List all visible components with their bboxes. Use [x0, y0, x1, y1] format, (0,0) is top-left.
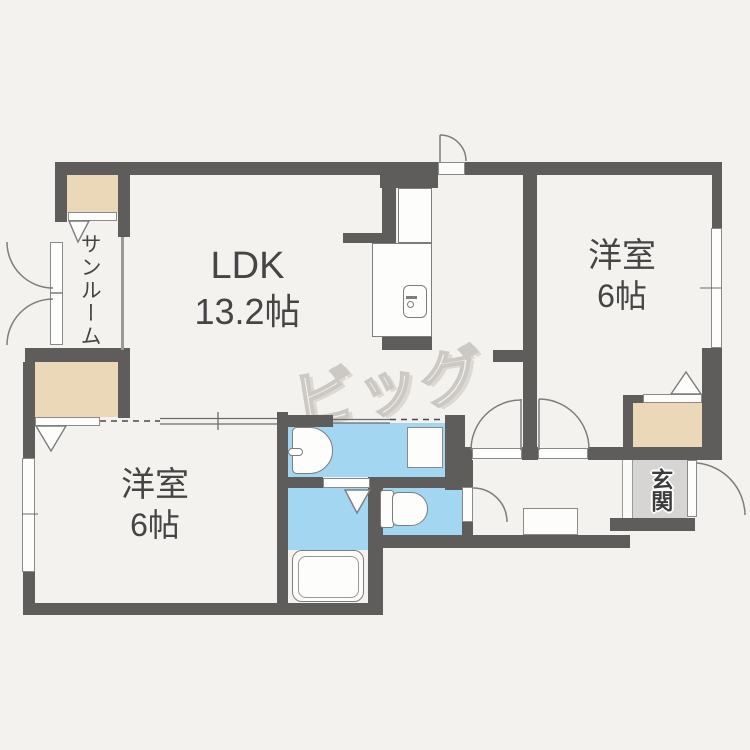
ldk-label: LDK 13.2帖 — [140, 246, 355, 331]
ldk-size: 13.2帖 — [140, 292, 355, 332]
folding-door-icon — [671, 372, 701, 394]
sunroom-label: サンルーム — [78, 224, 101, 356]
door-arc — [471, 400, 521, 450]
bedroom-right-size: 6帖 — [537, 279, 707, 314]
door-arc — [7, 242, 53, 288]
door-swing-overlay — [0, 0, 750, 750]
bedroom-right-name: 洋室 — [537, 238, 707, 275]
folding-door-icon — [345, 490, 370, 513]
bedroom-left-size: 6帖 — [70, 508, 240, 543]
entrance-label: 玄関 — [648, 463, 672, 517]
bedroom-left-label: 洋室 6帖 — [70, 467, 240, 544]
door-arc — [473, 488, 507, 522]
floor-plan: ビッグ — [0, 0, 750, 750]
ldk-name: LDK — [140, 246, 355, 288]
door-arc — [440, 135, 466, 161]
folding-door-icon — [36, 426, 66, 451]
door-arc — [697, 463, 745, 515]
door-arc — [7, 299, 53, 345]
bedroom-right-label: 洋室 6帖 — [537, 238, 707, 315]
bedroom-left-name: 洋室 — [70, 467, 240, 504]
door-arc — [539, 399, 589, 449]
